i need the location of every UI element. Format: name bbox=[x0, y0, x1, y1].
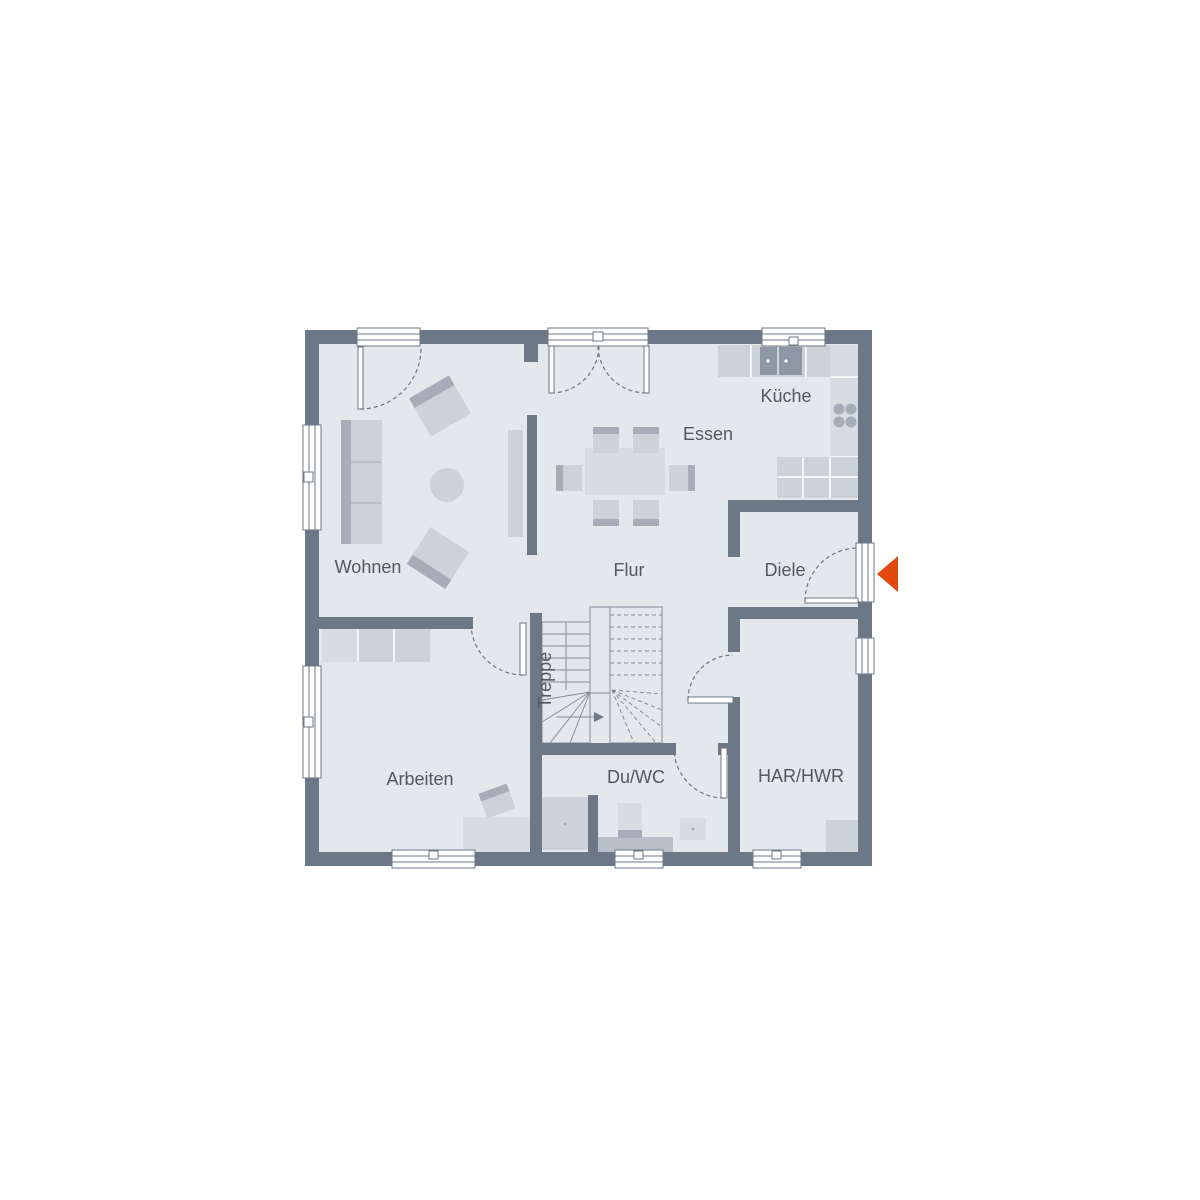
utility-window-south bbox=[753, 850, 801, 868]
toilet bbox=[618, 803, 642, 830]
dining-chair bbox=[633, 427, 659, 453]
kitchen-window bbox=[762, 328, 825, 346]
sideboard bbox=[508, 430, 523, 537]
wall-bath-top bbox=[530, 743, 676, 755]
terrace-door-frame bbox=[357, 328, 420, 346]
desk bbox=[463, 817, 541, 852]
tv-partition-wall bbox=[527, 415, 537, 555]
office-window-south bbox=[392, 850, 475, 868]
shelf bbox=[322, 629, 358, 662]
door-handle bbox=[593, 332, 603, 341]
office-window-west bbox=[303, 666, 321, 778]
dining-chair bbox=[556, 465, 582, 491]
dining-chair bbox=[669, 465, 695, 491]
room-label-flur: Flur bbox=[614, 560, 645, 580]
bath-window bbox=[615, 850, 663, 868]
wall-stub-top bbox=[524, 344, 538, 362]
dining-chair bbox=[633, 500, 659, 526]
wall-utility-left-upper bbox=[728, 607, 740, 652]
dining-table bbox=[585, 448, 665, 495]
room-label-wohnen: Wohnen bbox=[335, 557, 402, 577]
floor-plan: Wohnen Essen Küche Flur Diele Treppe Arb… bbox=[0, 0, 1200, 1200]
wall-utility-left-lower bbox=[728, 697, 740, 852]
room-label-treppe: Treppe bbox=[535, 652, 555, 708]
living-window bbox=[303, 425, 321, 530]
sofa-backrest bbox=[341, 420, 351, 544]
room-label-harhwr: HAR/HWR bbox=[758, 766, 844, 786]
room-label-arbeiten: Arbeiten bbox=[386, 769, 453, 789]
room-label-diele: Diele bbox=[764, 560, 805, 580]
wall-office-stair bbox=[530, 613, 542, 852]
coffee-table bbox=[430, 468, 464, 502]
double-door-frame bbox=[548, 328, 648, 346]
wall-living-office bbox=[319, 617, 473, 629]
toilet-base bbox=[618, 830, 642, 838]
washing-machine bbox=[826, 820, 858, 852]
utility-window-east bbox=[856, 638, 874, 674]
dining-chair bbox=[593, 427, 619, 453]
wall-diele-bottom bbox=[728, 607, 858, 619]
entrance-door-frame bbox=[856, 543, 874, 602]
exterior-wall-west bbox=[305, 330, 319, 866]
shelf bbox=[394, 629, 430, 662]
dining-chair bbox=[593, 500, 619, 526]
room-label-essen: Essen bbox=[683, 424, 733, 444]
shower-partition bbox=[588, 795, 598, 852]
refrigerator bbox=[779, 347, 802, 375]
entrance-arrow-icon bbox=[877, 556, 898, 592]
room-label-duwc: Du/WC bbox=[607, 767, 665, 787]
room-label-kueche: Küche bbox=[760, 386, 811, 406]
floor-plan-canvas: Wohnen Essen Küche Flur Diele Treppe Arb… bbox=[0, 0, 1200, 1200]
shelf bbox=[358, 629, 394, 662]
wall-diele-left-stub bbox=[728, 500, 740, 557]
wall-diele-top bbox=[728, 500, 858, 512]
